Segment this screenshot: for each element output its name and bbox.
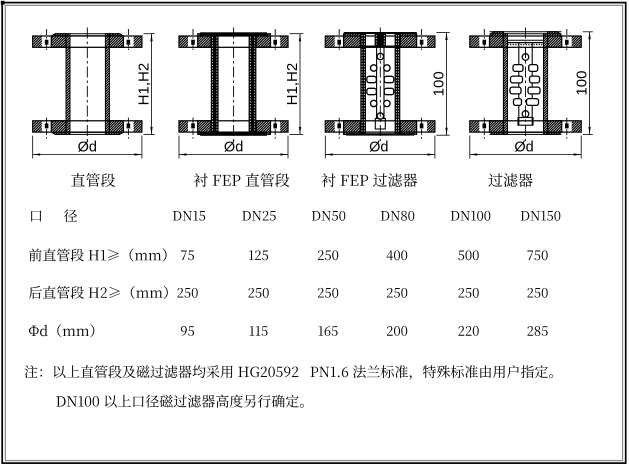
svg-text:Ød: Ød [78, 140, 97, 156]
svg-text:100: 100 [430, 71, 447, 96]
svg-text:Ød: Ød [514, 140, 533, 156]
svg-text:H1,H2: H1,H2 [135, 63, 152, 106]
svg-text:H1,H2: H1,H2 [284, 63, 301, 106]
svg-text:Ød: Ød [224, 140, 243, 156]
svg-text:Ød: Ød [369, 140, 388, 156]
svg-text:100: 100 [573, 71, 590, 96]
